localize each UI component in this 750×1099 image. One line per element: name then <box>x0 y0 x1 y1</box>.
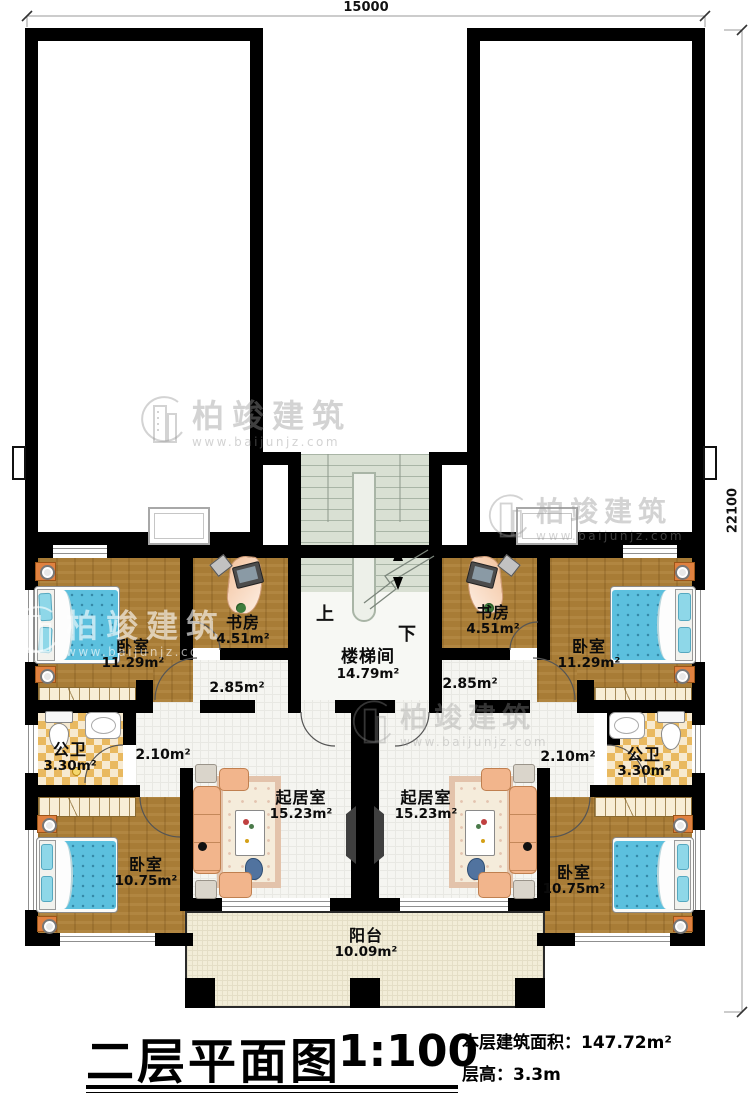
room-label-living-l: 起居室 15.23m² <box>270 789 333 822</box>
closet-bedroom-bl <box>38 797 136 817</box>
flower-decal <box>243 819 249 825</box>
toilet-tank-icon <box>45 711 73 723</box>
room-area: 2.10m² <box>540 750 595 766</box>
lamp-icon <box>675 669 690 684</box>
lamp-icon <box>42 818 57 833</box>
room-label-bedroom-tl: 卧室 11.29m² <box>102 638 165 671</box>
wall <box>330 898 400 911</box>
nightstand <box>35 666 56 683</box>
wall-living-l <box>180 768 193 911</box>
void-shaft-right <box>467 28 705 545</box>
room-label-hall-upper-l: 2.85m² <box>209 681 264 697</box>
pillow <box>678 627 691 653</box>
wall <box>200 700 255 713</box>
room-label-hall-upper-r: 2.85m² <box>442 677 497 693</box>
tv-icon-left <box>346 806 356 864</box>
wall <box>590 785 705 797</box>
sofa <box>193 786 221 874</box>
lamp-icon <box>673 919 688 934</box>
blanket-fold <box>657 590 675 660</box>
nightstand <box>673 815 693 833</box>
pillow <box>38 627 52 654</box>
wall-bath-l <box>123 713 136 745</box>
stair-up-label: 上 <box>316 600 334 626</box>
room-area: 4.51m² <box>216 632 269 647</box>
armchair <box>478 872 511 898</box>
room-area: 10.09m² <box>335 945 398 960</box>
bed <box>610 586 696 664</box>
lamp-icon <box>42 919 57 934</box>
stair-down-label: 下 <box>398 620 416 646</box>
room-area: 11.29m² <box>558 656 621 671</box>
floor-area-value: 147.72m² <box>581 1033 672 1053</box>
sheet-title: 二层平面图 <box>86 1022 341 1092</box>
room-label-study-l: 书房 4.51m² <box>216 614 269 647</box>
flower-decal <box>249 824 254 829</box>
nightstand <box>37 815 57 833</box>
void-shaft-left <box>25 28 263 545</box>
closet-bedroom-br <box>594 797 692 817</box>
nightstand <box>673 916 693 932</box>
lamp-icon <box>675 565 690 580</box>
room-label-bedroom-tr: 卧室 11.29m² <box>558 638 621 671</box>
coffee-table <box>235 810 265 856</box>
balcony-column <box>350 978 380 1008</box>
floor-area-info: 本层建筑面积：147.72m² <box>462 1028 672 1053</box>
floor-area-label: 本层建筑面积： <box>462 1033 581 1053</box>
room-area: 14.79m² <box>337 667 400 682</box>
wall-stairwell-right <box>429 452 442 713</box>
table-decal <box>481 839 485 843</box>
room-area: 11.29m² <box>102 656 165 671</box>
wall <box>537 545 550 660</box>
side-table <box>195 764 217 783</box>
dimension-right: 22100 <box>726 488 741 534</box>
room-area: 2.85m² <box>442 677 497 693</box>
room-name: 卧室 <box>543 864 606 882</box>
bed-group-bedroom-br <box>610 815 694 933</box>
room-label-hall-lower-l: 2.10m² <box>135 748 190 764</box>
sink-icon <box>85 712 121 739</box>
flower-decal <box>476 824 481 829</box>
room-area: 3.30m² <box>617 764 670 779</box>
room-name: 公卫 <box>43 741 96 759</box>
bed <box>36 837 118 913</box>
window <box>575 933 670 946</box>
pillow <box>677 876 689 902</box>
room-label-bath-l: 公卫 3.30m² <box>43 741 96 774</box>
monitor-screen <box>237 566 259 583</box>
wall <box>577 680 594 700</box>
window <box>25 725 38 773</box>
armchair <box>219 872 252 898</box>
pillow <box>677 844 689 870</box>
room-label-balcony: 阳台 10.09m² <box>335 927 398 960</box>
sofa-set-living-l <box>193 762 283 902</box>
flower-decal <box>481 819 487 825</box>
room-name: 起居室 <box>270 789 333 807</box>
room-area: 4.51m² <box>466 622 519 637</box>
wall <box>136 680 153 700</box>
bay-window-left <box>12 446 26 480</box>
balcony-column <box>515 978 545 1008</box>
nightstand <box>35 562 56 581</box>
nightstand <box>674 666 695 683</box>
toilet-tank-icon <box>657 711 685 723</box>
wall <box>220 648 288 660</box>
bed-group-bedroom-bl <box>36 815 120 933</box>
pillow <box>41 876 53 902</box>
room-name: 楼梯间 <box>337 648 400 667</box>
side-table <box>513 764 535 783</box>
armchair <box>481 768 511 791</box>
room-label-bath-r: 公卫 3.30m² <box>617 746 670 779</box>
room-area: 15.23m² <box>395 807 458 822</box>
sink-icon <box>609 712 645 739</box>
nightstand <box>674 562 695 581</box>
room-name: 卧室 <box>102 638 165 656</box>
coffee-table <box>465 810 495 856</box>
floor-lamp-icon <box>523 842 532 851</box>
tv-icon-right <box>374 806 384 864</box>
window-frame-right <box>516 507 578 545</box>
sheet-scale: 1:100 <box>338 1026 478 1077</box>
room-area: 10.75m² <box>543 882 606 897</box>
wall-party-center <box>351 700 379 911</box>
balcony-column <box>185 978 215 1008</box>
wall <box>442 648 510 660</box>
lamp-icon <box>40 669 55 684</box>
floor-height-info: 层高：3.3m <box>462 1060 561 1085</box>
dimension-top: 15000 <box>343 0 388 15</box>
floor-lamp-icon <box>198 842 207 851</box>
room-name: 起居室 <box>395 789 458 807</box>
room-name: 公卫 <box>617 746 670 764</box>
table-decal <box>245 839 249 843</box>
room-label-bedroom-br: 卧室 10.75m² <box>543 864 606 897</box>
floor-plan: 15000 22100 卧室 11.29m² 书房 4.51m² 卧室 11.2… <box>0 0 750 1099</box>
blanket-fold <box>657 841 674 909</box>
room-area: 2.85m² <box>209 681 264 697</box>
window <box>60 933 155 946</box>
wall <box>475 700 530 713</box>
bay-window-right <box>703 446 717 480</box>
bed <box>612 837 694 913</box>
lamp-icon <box>673 818 688 833</box>
pillow <box>41 844 53 870</box>
title-underline <box>86 1085 458 1089</box>
monitor-screen <box>472 566 494 583</box>
room-area: 3.30m² <box>43 759 96 774</box>
window <box>53 545 107 558</box>
wall <box>25 785 140 797</box>
room-name: 卧室 <box>115 856 178 874</box>
room-area: 10.75m² <box>115 874 178 889</box>
desk-group-study-l <box>212 556 268 618</box>
nightstand <box>37 916 57 932</box>
sink-basin <box>91 717 116 734</box>
room-label-hall-lower-r: 2.10m² <box>540 750 595 766</box>
plant-icon <box>236 603 246 613</box>
room-area: 15.23m² <box>270 807 333 822</box>
sofa <box>509 786 537 874</box>
room-name: 书房 <box>466 604 519 622</box>
window <box>692 725 705 773</box>
window <box>623 545 677 558</box>
room-area: 2.10m² <box>135 748 190 764</box>
room-label-stairwell: 楼梯间 14.79m² <box>337 648 400 682</box>
room-name: 书房 <box>216 614 269 632</box>
room-label-study-r: 书房 4.51m² <box>466 604 519 637</box>
wall-rooms-top <box>25 545 705 558</box>
window-frame-left <box>148 507 210 545</box>
sofa-set-living-r <box>447 762 537 902</box>
room-name: 卧室 <box>558 638 621 656</box>
room-name: 阳台 <box>335 927 398 945</box>
room-label-living-r: 起居室 15.23m² <box>395 789 458 822</box>
floor-height-value: 3.3m <box>513 1065 561 1085</box>
side-table <box>195 880 217 899</box>
wall <box>180 545 193 660</box>
room-label-bedroom-bl: 卧室 10.75m² <box>115 856 178 889</box>
sink-basin <box>614 717 639 734</box>
wall-stairwell-left <box>288 452 301 713</box>
pillow <box>38 593 52 622</box>
floor-height-label: 层高： <box>462 1065 513 1085</box>
lamp-icon <box>40 565 55 580</box>
bed-group-bedroom-tr <box>608 562 696 683</box>
armchair <box>219 768 249 791</box>
title-underline-thin <box>86 1092 458 1093</box>
side-table <box>513 880 535 899</box>
pillow <box>678 593 691 621</box>
